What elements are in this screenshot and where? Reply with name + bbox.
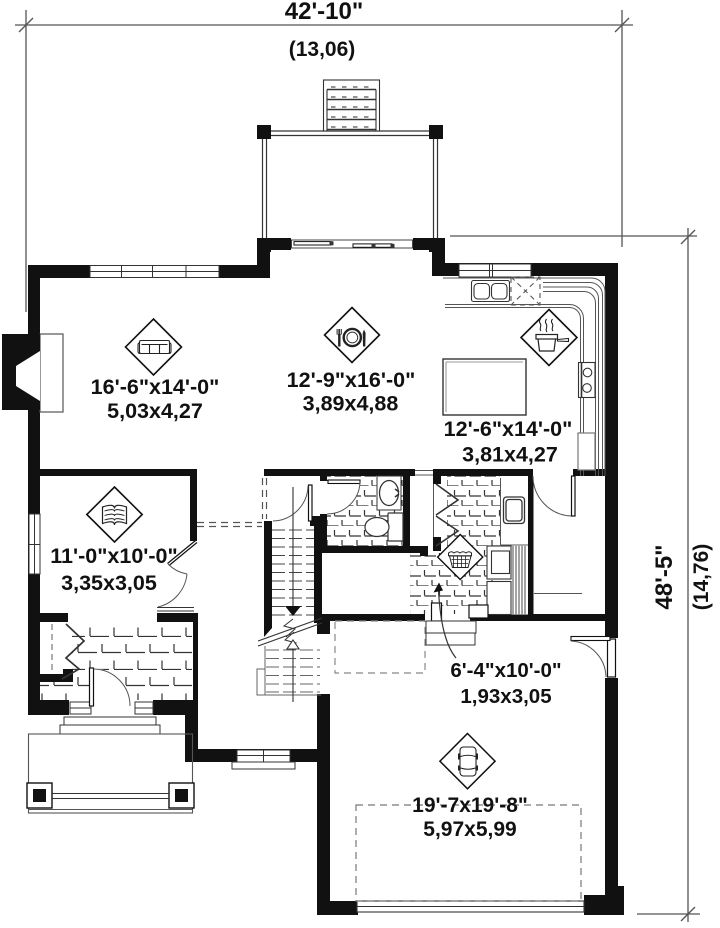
svg-text:5,03x4,27: 5,03x4,27	[107, 399, 203, 423]
svg-text:(14,76): (14,76)	[690, 544, 713, 611]
svg-text:3,81x4,27: 3,81x4,27	[462, 443, 558, 467]
svg-text:16'-6"x14'-0": 16'-6"x14'-0"	[91, 375, 220, 399]
svg-text:6'-4"x10'-0": 6'-4"x10'-0"	[450, 659, 561, 682]
svg-text:42'-10": 42'-10"	[285, 0, 363, 25]
svg-text:3,89x4,88: 3,89x4,88	[303, 392, 399, 416]
svg-text:3,35x3,05: 3,35x3,05	[61, 571, 157, 595]
svg-text:5,97x5,99: 5,97x5,99	[423, 818, 516, 841]
svg-text:12'-6"x14'-0": 12'-6"x14'-0"	[444, 417, 573, 441]
svg-text:12'-9"x16'-0": 12'-9"x16'-0"	[287, 368, 416, 392]
svg-text:19'-7x19'-8": 19'-7x19'-8"	[412, 794, 528, 817]
svg-text:11'-0"x10'-0": 11'-0"x10'-0"	[50, 544, 177, 568]
svg-text:1,93x3,05: 1,93x3,05	[460, 685, 551, 708]
svg-text:(13,06): (13,06)	[289, 38, 356, 61]
svg-text:48'-5": 48'-5"	[651, 544, 678, 609]
